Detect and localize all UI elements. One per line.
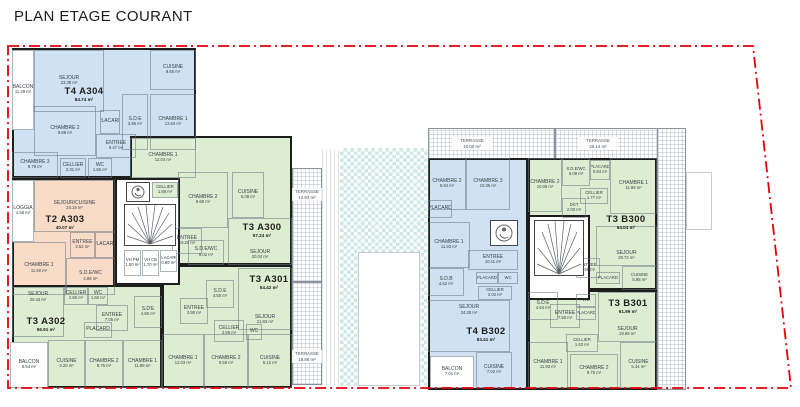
room-b301-placard: PLACARD (576, 307, 596, 320)
room-a302-sde: S.D'E4.60 m² (134, 296, 162, 328)
room-a302-cuisine: CUISINE4.20 m² (48, 340, 85, 388)
apartment-a304-label: T4 A30484.74 m² (52, 86, 116, 103)
room-a304-chambre2: CHAMBRE 29.88 m² (34, 106, 96, 156)
room-a304-cuisine: CUISINE9.65 m² (150, 50, 196, 90)
room-corea-vhpm: VH PM1.50 m² (124, 250, 141, 276)
room-a303-loggia: LOGGIA4.58 m² (12, 180, 34, 242)
room-a303-entree: ENTREE3.52 m² (70, 232, 95, 258)
room-b300-sde-wc: S.D.E/WC5.09 m² (562, 158, 590, 186)
room-b302-cellier: CELLIER2.02 m² (478, 286, 512, 300)
room-a304-placard: PLACARD (100, 110, 120, 134)
balcony-b-side (686, 172, 712, 230)
room-b302-chambre1: CHAMBRE 111.93 m² (428, 222, 470, 268)
terrace-b-side (657, 128, 686, 390)
room-b300-placard2: PLACARD (596, 272, 620, 284)
room-b302-cuisine: CUISINE7.02 m² (476, 352, 512, 388)
room-a304-chambre3: CHAMBRE 39.79 m² (12, 152, 58, 178)
room-a300-cellier: CELLIER1.88 m² (152, 182, 178, 198)
apartment-b300-label: T3 B30064.04 m² (598, 214, 654, 231)
room-a301-sde: S.D.E4.50 m² (206, 280, 234, 308)
room-b300-placard: PLACARD0.84 m² (590, 160, 610, 180)
room-b300-dgt: DGT2.00 m² (562, 198, 586, 218)
room-corea-placard: PLACARD0.89 m² (160, 250, 177, 272)
apartment-b302-label: T4 B30283.41 m² (458, 326, 514, 343)
room-a301-cuisine: CUISINE5.12 m² (248, 334, 292, 388)
apartment-a302-label: T3 A30255.91 m² (18, 316, 74, 333)
room-b300-chambre1: CHAMBRE 111.99 m² (610, 158, 657, 214)
room-b302-balcon: BALCON7.01 m² (430, 356, 474, 388)
room-a302-chambre1: CHAMBRE 111.98 m² (123, 340, 162, 388)
terrace-a301 (292, 282, 322, 385)
room-a301-chambre2: CHAMBRE 29.58 m² (204, 334, 248, 388)
room-a300-sde-wc: S.D.E/WC5.02 m² (188, 240, 224, 265)
room-a302-wc: WC1.60 m² (88, 287, 108, 305)
apartment-a301-label: T3 A30154.42 m² (246, 274, 292, 291)
room-a301-entree: ENTREE3.90 m² (180, 298, 208, 324)
room-corea-vhcb: VH CB1.70 m² (142, 250, 159, 276)
room-b300-sejour: SEJOUR20.72 m² (596, 226, 657, 266)
room-b300-chambre2: CHAMBRE 210.06 m² (528, 158, 562, 212)
room-b302-placard2: PLACARD (476, 272, 498, 284)
room-b301-wc: WC (576, 294, 596, 307)
room-b302-placard: PLACARD (428, 200, 452, 218)
room-b301-chambre1: CHAMBRE 111.93 m² (528, 342, 568, 388)
terrace-b302-label: TERRASSE10.00 m² (452, 137, 492, 150)
room-a304-cellier: CELLIER2.31 m² (60, 158, 86, 178)
floor-plan-canvas: PLAN ETAGE COURANT TERRASSE12.93 m² TERR… (0, 0, 800, 407)
elevator-b-icon (490, 220, 518, 246)
terrace-a300-label: TERRASSE12.93 m² (292, 188, 322, 201)
garden-strip (322, 150, 340, 386)
room-a302-balcon: BALCON8.54 m² (10, 342, 48, 388)
room-a301-chambre1: CHAMBRE 112.03 m² (162, 334, 204, 388)
room-a302-cellier: CELLIER2.60 m² (64, 287, 88, 305)
apartment-b301-label: T3 B30161.99 m² (602, 298, 654, 315)
room-b302-wc: WC (498, 272, 518, 284)
room-b302-entree: ENTREE10.11 m² (468, 250, 518, 270)
room-b300-cuisine: CUISINE5.98 m² (622, 266, 657, 290)
room-a300-cuisine: CUISINE5.08 m² (232, 172, 264, 218)
room-b302-chambre3: CHAMBRE 310.35 m² (466, 158, 510, 210)
apartment-a303-label: T2 A30340.07 m² (38, 214, 92, 231)
room-a302-chambre2: CHAMBRE 29.75 m² (85, 340, 123, 388)
terrace-a300 (292, 168, 322, 282)
room-b301-chambre2: CHAMBRE 29.75 m² (570, 354, 618, 388)
room-b302-sdb: S.D.B4.52 m² (428, 268, 464, 296)
room-a303-placard: PLACARD (95, 232, 115, 258)
terrace-a301-label: TERRASSE18.88 m² (292, 350, 322, 363)
apartment-a300-label: T3 A30057.24 m² (234, 222, 290, 239)
room-b301-cellier: CELLIER1.63 m² (566, 334, 598, 352)
room-b301-cuisine: CUISINE5.44 m² (620, 342, 657, 388)
courtyard-opening (358, 252, 420, 386)
room-a300-chambre2: CHAMBRE 29.69 m² (178, 172, 228, 228)
staircase-b-icon (534, 220, 584, 276)
elevator-a-icon (126, 182, 150, 202)
staircase-a-icon (124, 204, 176, 246)
plan-title: PLAN ETAGE COURANT (14, 8, 193, 25)
room-a304-balcon: BALCON11.28 m² (12, 50, 34, 130)
room-a304-wc: WC1.65 m² (88, 158, 112, 178)
room-a302-placard: PLACARD (84, 322, 112, 338)
terrace-b300-label: TERRASSE20.14 m² (578, 137, 618, 150)
